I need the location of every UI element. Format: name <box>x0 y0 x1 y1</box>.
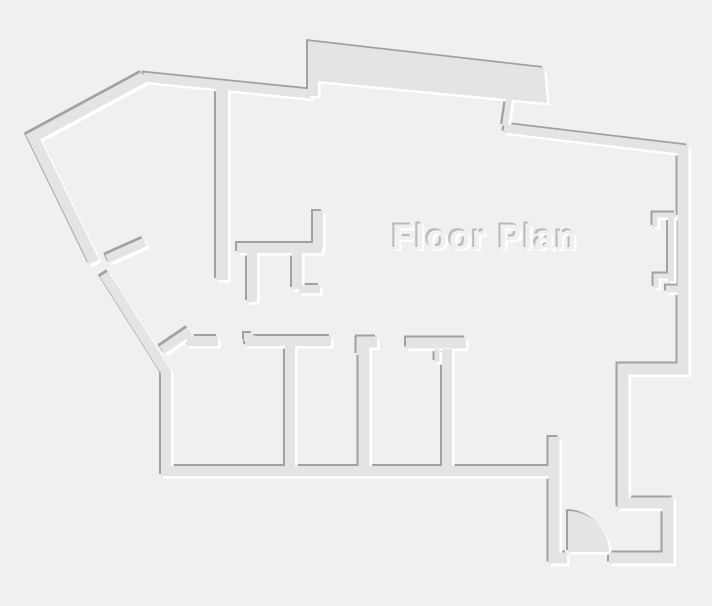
page-title: Floor Plan <box>392 218 578 257</box>
walls-main-layer <box>33 41 688 558</box>
floor-plan-svg: Floor Plan Floor Plan Floor Plan <box>0 0 712 606</box>
walls-highlight-light-layer <box>36 44 691 561</box>
floor-plan-canvas: Floor Plan Floor Plan Floor Plan <box>0 0 712 606</box>
